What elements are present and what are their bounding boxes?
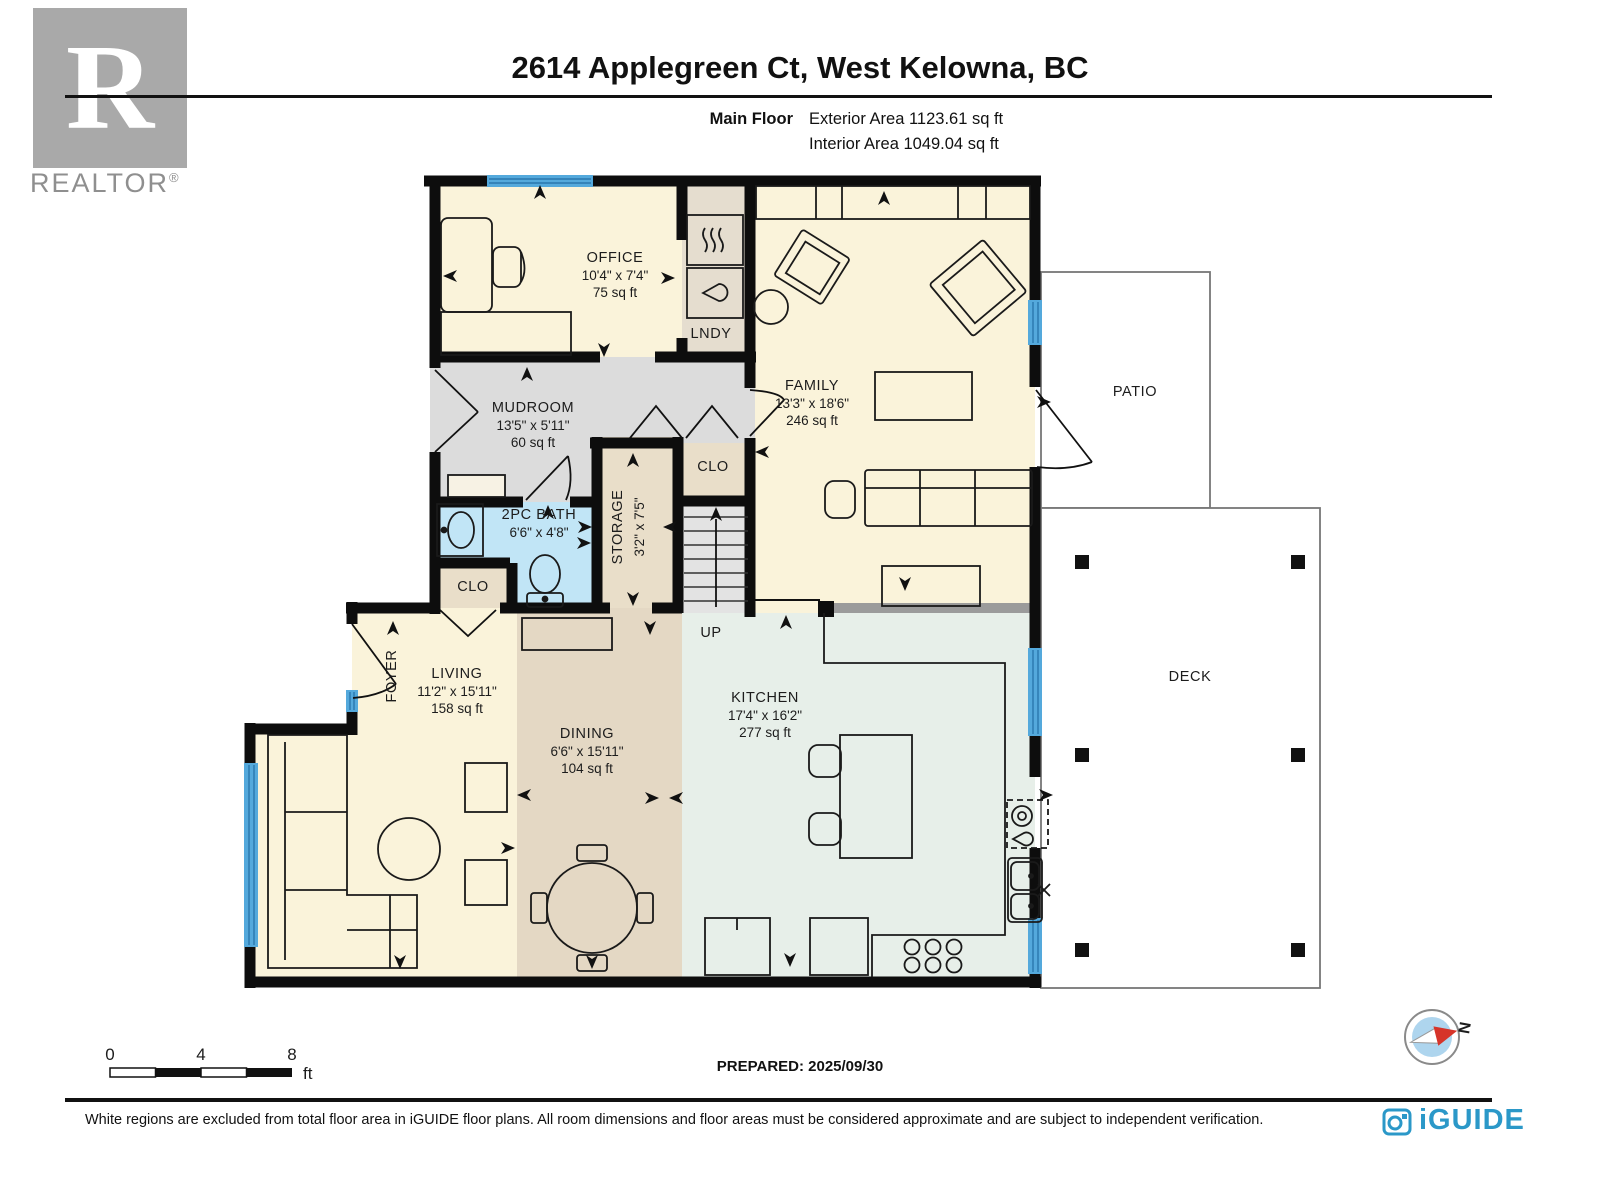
svg-text:11'2" x 15'11": 11'2" x 15'11": [417, 684, 497, 699]
compass: N: [1405, 1010, 1473, 1064]
window: [244, 763, 258, 947]
laundry-label: LNDY: [690, 326, 731, 342]
closet-lower-label: CLO: [457, 579, 489, 595]
office-label: OFFICE: [587, 250, 644, 266]
bath-label: 2PC BATH: [502, 507, 577, 523]
dining-label: DINING: [560, 726, 614, 742]
svg-text:6'6" x 15'11": 6'6" x 15'11": [550, 744, 623, 759]
patio-label: PATIO: [1113, 384, 1157, 400]
svg-text:158 sq ft: 158 sq ft: [431, 701, 483, 716]
disclaimer-text: White regions are excluded from total fl…: [85, 1112, 1265, 1128]
up-label: UP: [700, 625, 721, 641]
iguide-wordmark: iGUIDE: [1419, 1104, 1525, 1137]
svg-text:246 sq ft: 246 sq ft: [786, 413, 838, 428]
svg-text:60 sq ft: 60 sq ft: [511, 435, 556, 450]
mudroom-bench: [448, 475, 505, 497]
living-label: LIVING: [431, 666, 482, 682]
prepared-date: PREPARED: 2025/09/30: [0, 1058, 1600, 1075]
kitchen-label: KITCHEN: [731, 690, 799, 706]
floor-plan: OFFICE 10'4" x 7'4" 75 sq ft LNDY FAMILY…: [0, 0, 1600, 1200]
wall-post: [818, 601, 834, 617]
dining-floor: [517, 608, 682, 977]
window: [1028, 300, 1042, 345]
deck-label: DECK: [1169, 669, 1212, 685]
window: [1028, 918, 1042, 974]
svg-text:10'4" x 7'4": 10'4" x 7'4": [582, 268, 649, 283]
storage-label: STORAGE: [610, 490, 626, 565]
outdoor-areas: [1041, 272, 1320, 988]
foyer-label: FOYER: [384, 650, 400, 703]
kitchen-floor: [682, 613, 1035, 977]
iguide-camera-icon: [1382, 1106, 1414, 1136]
window: [346, 690, 358, 712]
mudroom-label: MUDROOM: [492, 400, 574, 416]
family-label: FAMILY: [785, 378, 839, 394]
svg-text:13'5" x 5'11": 13'5" x 5'11": [496, 418, 569, 433]
svg-text:17'4" x 16'2": 17'4" x 16'2": [728, 708, 802, 723]
window: [1028, 648, 1042, 736]
svg-text:3'2" x 7'5": 3'2" x 7'5": [632, 497, 647, 556]
svg-text:104 sq ft: 104 sq ft: [561, 761, 613, 776]
svg-text:277 sq ft: 277 sq ft: [739, 725, 791, 740]
svg-text:13'3" x 18'6": 13'3" x 18'6": [775, 396, 849, 411]
footer-rule: [65, 1098, 1492, 1102]
svg-text:75 sq ft: 75 sq ft: [593, 285, 638, 300]
svg-text:6'6" x 4'8": 6'6" x 4'8": [509, 525, 568, 540]
room-floors: [250, 181, 1035, 977]
iguide-logo: iGUIDE: [1382, 1104, 1525, 1137]
closet-upper-label: CLO: [697, 459, 729, 475]
half-wall-strip: [834, 603, 1035, 613]
